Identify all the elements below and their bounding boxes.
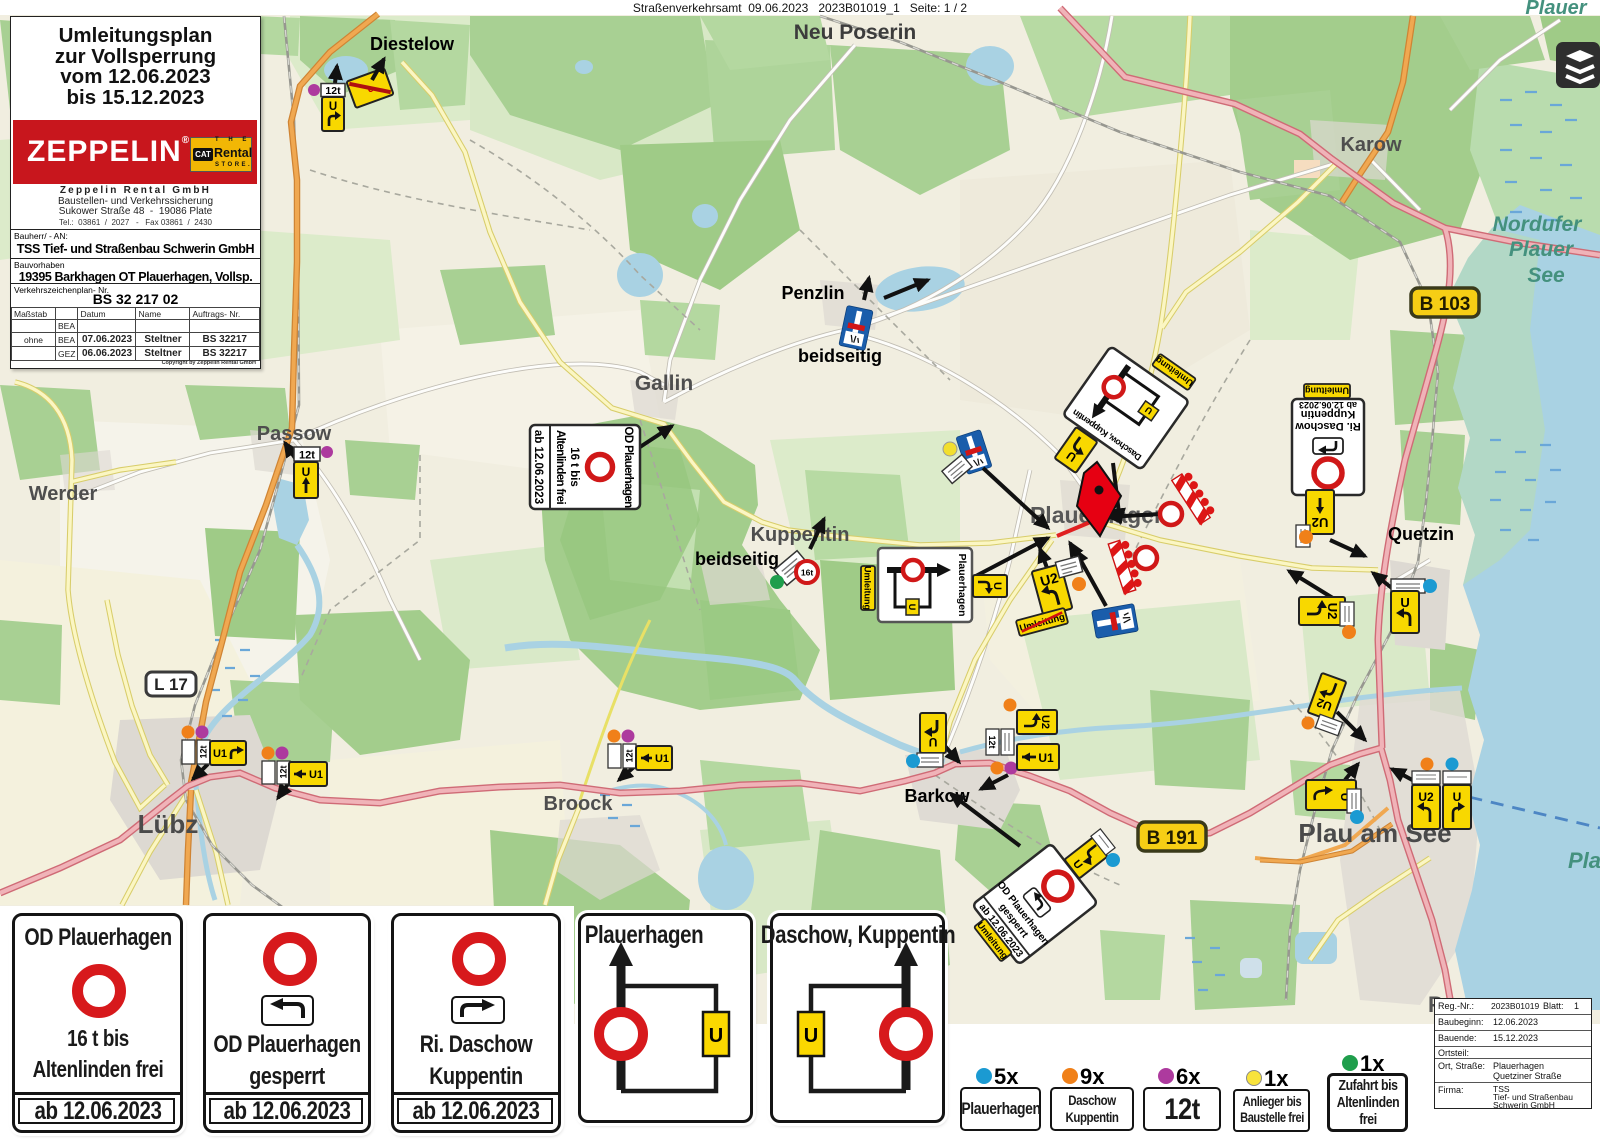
svg-text:U2: U2: [1312, 515, 1329, 530]
svg-text:Umleitung: Umleitung: [1305, 386, 1349, 396]
svg-text:See: See: [1527, 264, 1565, 287]
svg-text:B 103: B 103: [1420, 294, 1471, 315]
svg-text:U1: U1: [309, 769, 323, 781]
svg-text:L 17: L 17: [154, 675, 188, 694]
svg-text:Quetzin: Quetzin: [1388, 524, 1454, 544]
svg-text:beidseitig: beidseitig: [798, 346, 882, 366]
svg-text:Altenlinden frei: Altenlinden frei: [554, 430, 566, 505]
svg-text:12t: 12t: [625, 749, 635, 762]
svg-text:Kuppentin: Kuppentin: [751, 524, 850, 546]
svg-text:U2: U2: [1325, 603, 1340, 620]
svg-text:Neu Poserin: Neu Poserin: [794, 21, 917, 44]
svg-text:U: U: [1453, 790, 1462, 804]
svg-text:Penzlin: Penzlin: [781, 283, 844, 303]
svg-text:Gallin: Gallin: [635, 372, 693, 395]
svg-text:U: U: [329, 101, 337, 113]
svg-text:ab 12.06.2023: ab 12.06.2023: [1299, 400, 1357, 410]
svg-text:U: U: [929, 735, 938, 749]
svg-text:12t: 12t: [299, 450, 315, 462]
svg-text:Karow: Karow: [1340, 134, 1402, 156]
svg-text:12t: 12t: [325, 85, 341, 97]
svg-text:U1: U1: [213, 748, 227, 760]
svg-text:U2: U2: [1418, 790, 1434, 804]
svg-text:beidseitig: beidseitig: [695, 549, 779, 569]
svg-text:ab 12.06.2023: ab 12.06.2023: [532, 430, 544, 504]
svg-text:U: U: [302, 465, 311, 479]
svg-text:U: U: [991, 582, 1003, 590]
svg-text:Umleitung: Umleitung: [863, 566, 873, 610]
svg-text:Ri. Daschow: Ri. Daschow: [1295, 420, 1361, 432]
svg-text:12t: 12t: [279, 765, 289, 778]
svg-text:U: U: [907, 604, 917, 611]
svg-text:Passow: Passow: [257, 423, 332, 445]
svg-text:12t: 12t: [987, 735, 997, 748]
svg-text:Werder: Werder: [29, 483, 98, 505]
svg-text:B 191: B 191: [1147, 828, 1198, 849]
svg-text:12t: 12t: [199, 745, 209, 758]
svg-text:U1: U1: [655, 753, 669, 765]
svg-text:U: U: [1400, 595, 1409, 610]
svg-text:Plauer: Plauer: [1509, 238, 1575, 261]
svg-text:16 t bis: 16 t bis: [568, 447, 580, 487]
svg-text:U1: U1: [1038, 751, 1054, 765]
svg-text:OD Plauerhagen: OD Plauerhagen: [622, 426, 634, 508]
svg-text:Nordufer: Nordufer: [1493, 213, 1583, 236]
svg-text:U: U: [709, 1025, 723, 1047]
svg-text:Lübz: Lübz: [138, 809, 199, 839]
svg-text:16t: 16t: [801, 568, 813, 578]
svg-text:Broock: Broock: [544, 793, 614, 815]
svg-text:Diestelow: Diestelow: [370, 34, 455, 54]
svg-text:U2: U2: [1039, 715, 1051, 729]
svg-text:U: U: [804, 1025, 818, 1047]
svg-text:Plauer: Plauer: [1568, 848, 1600, 873]
svg-text:Plauerhagen: Plauerhagen: [956, 553, 968, 616]
